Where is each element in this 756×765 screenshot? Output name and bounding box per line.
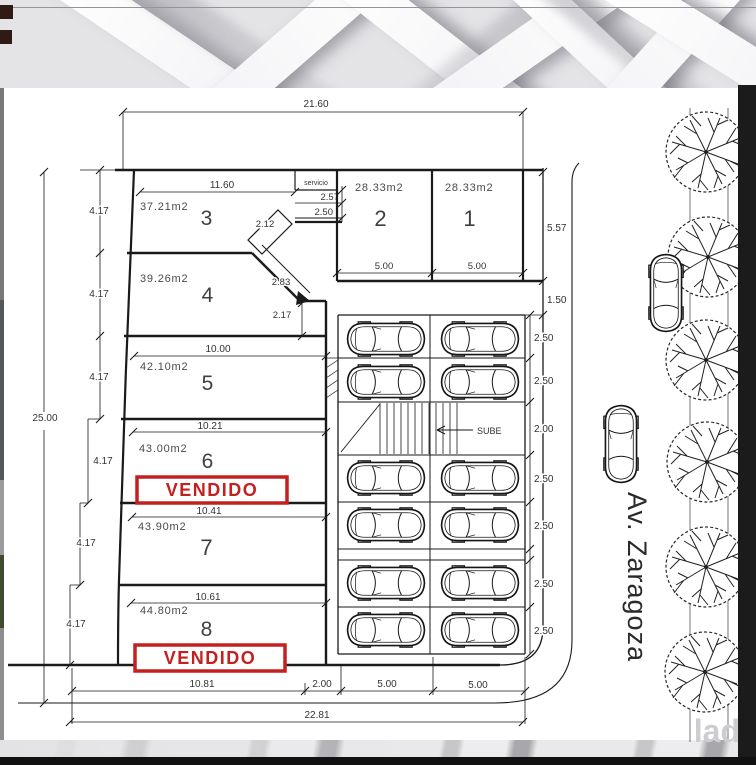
lot-number: 3 — [201, 207, 214, 230]
lot-number: 4 — [202, 284, 215, 307]
left-boundary — [118, 170, 134, 665]
car-icon — [442, 508, 519, 542]
dim-label: 5.00 — [375, 261, 394, 272]
photo-right-border — [738, 85, 756, 765]
lot-number: 5 — [202, 372, 215, 395]
dim-label: 10.61 — [195, 592, 220, 603]
tree-icon — [666, 320, 746, 400]
lot-number: 2 — [374, 206, 387, 231]
car-icon — [348, 322, 425, 356]
lot-number: 7 — [200, 535, 213, 560]
lot-number: 8 — [201, 618, 214, 641]
lot-area-label: 37.21m2 — [140, 201, 188, 213]
dim-label: 4.17 — [89, 206, 109, 217]
lot-area-label: 44.80m2 — [140, 605, 188, 617]
dim-label: 4.17 — [89, 372, 109, 383]
dim-label: 2.00 — [312, 679, 332, 690]
listing-photo: Av. Zaragoza 21.60 25.00 4.17 4.17 4.17 … — [0, 0, 756, 765]
car-icon — [442, 322, 519, 356]
lot-area-label: 28.33m2 — [355, 182, 403, 194]
lot-area-label: 42.10m2 — [140, 361, 188, 373]
dim-label: 4.17 — [93, 456, 113, 467]
street-area: Av. Zaragoza — [604, 108, 748, 742]
hatch-lines — [326, 360, 338, 398]
car-icon — [442, 461, 519, 495]
dim-label: 5.00 — [468, 680, 488, 691]
car-icon — [348, 613, 425, 647]
lot-area-label: 43.90m2 — [138, 521, 186, 533]
dim-label: 2.00 — [534, 424, 554, 435]
ramp-label: SUBE — [477, 426, 502, 436]
lot-area-label: 39.26m2 — [140, 273, 188, 285]
dim-label: 4.17 — [76, 538, 96, 549]
ramp-steps — [380, 403, 457, 454]
parking-cars — [348, 322, 519, 647]
car-icon — [348, 365, 425, 399]
dim-label: 22.81 — [304, 710, 329, 721]
dim-label: 2.83 — [272, 277, 291, 288]
dim-label: 2.50 — [534, 474, 554, 485]
dim-label: 2.17 — [273, 310, 292, 321]
dim-label: 10.00 — [205, 344, 230, 355]
sold-badge: VENDIDO — [137, 477, 287, 503]
site-plan-drawing: Av. Zaragoza 21.60 25.00 4.17 4.17 4.17 … — [0, 0, 756, 765]
dim-label: 2.50 — [534, 626, 554, 637]
service-label: servicio — [304, 180, 328, 187]
car-icon — [348, 566, 425, 600]
car-icon — [604, 406, 638, 483]
sold-badge: VENDIDO — [135, 645, 285, 671]
dim-label: 2.50 — [534, 333, 554, 344]
dim-label: 2.50 — [534, 376, 554, 387]
dim-label: 25.00 — [32, 413, 57, 424]
dim-label: 5.57 — [547, 223, 567, 234]
dim-label: 11.60 — [210, 180, 235, 191]
car-icon — [649, 255, 683, 332]
sold-badge-label: VENDIDO — [166, 480, 259, 500]
tree-icon — [666, 112, 746, 192]
dim-label: 10.21 — [197, 421, 222, 432]
watermark: lad — [694, 713, 740, 750]
tree-icon — [667, 422, 747, 502]
dim-label: 21.60 — [303, 99, 328, 110]
car-icon — [348, 508, 425, 542]
car-icon — [442, 365, 519, 399]
lot-number: 1 — [463, 206, 476, 231]
dim-label: 4.17 — [89, 289, 109, 300]
lot-area-label: 43.00m2 — [139, 443, 187, 455]
dim-label: 2.12 — [256, 219, 275, 230]
car-icon — [442, 566, 519, 600]
sube-arrow — [437, 426, 473, 434]
sold-badge-label: VENDIDO — [164, 648, 257, 668]
dim-label: 4.17 — [66, 619, 86, 630]
dim-label: 2.50 — [534, 579, 554, 590]
lot-area-label: 28.33m2 — [445, 182, 493, 194]
car-icon — [442, 613, 519, 647]
car-icon — [348, 461, 425, 495]
dim-label: 5.00 — [377, 679, 397, 690]
top-dimension — [123, 112, 523, 170]
dim-label: 10.81 — [189, 679, 214, 690]
dim-label: 2.50 — [315, 207, 334, 218]
dim-label: 1.50 — [547, 295, 567, 306]
dim-label: 2.50 — [534, 521, 554, 532]
dim-label: 10.41 — [196, 506, 221, 517]
tree-icon — [666, 527, 746, 607]
tree-icon — [665, 632, 745, 712]
photo-bottom-border — [0, 757, 756, 765]
dim-label: 5.00 — [468, 261, 487, 272]
lot-number: 6 — [202, 450, 215, 473]
street-name-label: Av. Zaragoza — [622, 492, 652, 662]
